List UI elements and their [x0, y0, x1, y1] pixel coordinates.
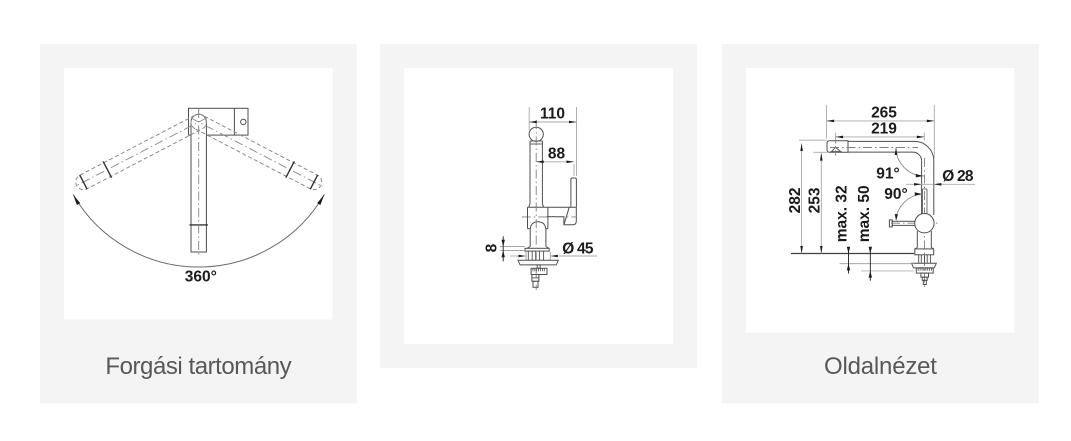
- svg-text:282: 282: [787, 187, 804, 213]
- svg-text:Ø 28: Ø 28: [942, 168, 974, 185]
- svg-text:253: 253: [806, 187, 823, 213]
- svg-text:110: 110: [540, 106, 565, 123]
- svg-text:88: 88: [548, 146, 566, 163]
- svg-text:90°: 90°: [884, 186, 907, 203]
- svg-text:360°: 360°: [185, 269, 217, 286]
- svg-text:219: 219: [871, 120, 897, 137]
- svg-text:Forgási tartomány: Forgási tartomány: [105, 353, 291, 380]
- svg-text:max. 32: max. 32: [834, 185, 851, 242]
- svg-text:Ø 45: Ø 45: [562, 240, 594, 257]
- svg-text:max. 50: max. 50: [856, 185, 873, 242]
- svg-text:Oldalnézet: Oldalnézet: [824, 353, 937, 380]
- svg-text:265: 265: [871, 104, 897, 121]
- svg-text:8: 8: [483, 243, 500, 252]
- svg-text:91°: 91°: [876, 166, 899, 183]
